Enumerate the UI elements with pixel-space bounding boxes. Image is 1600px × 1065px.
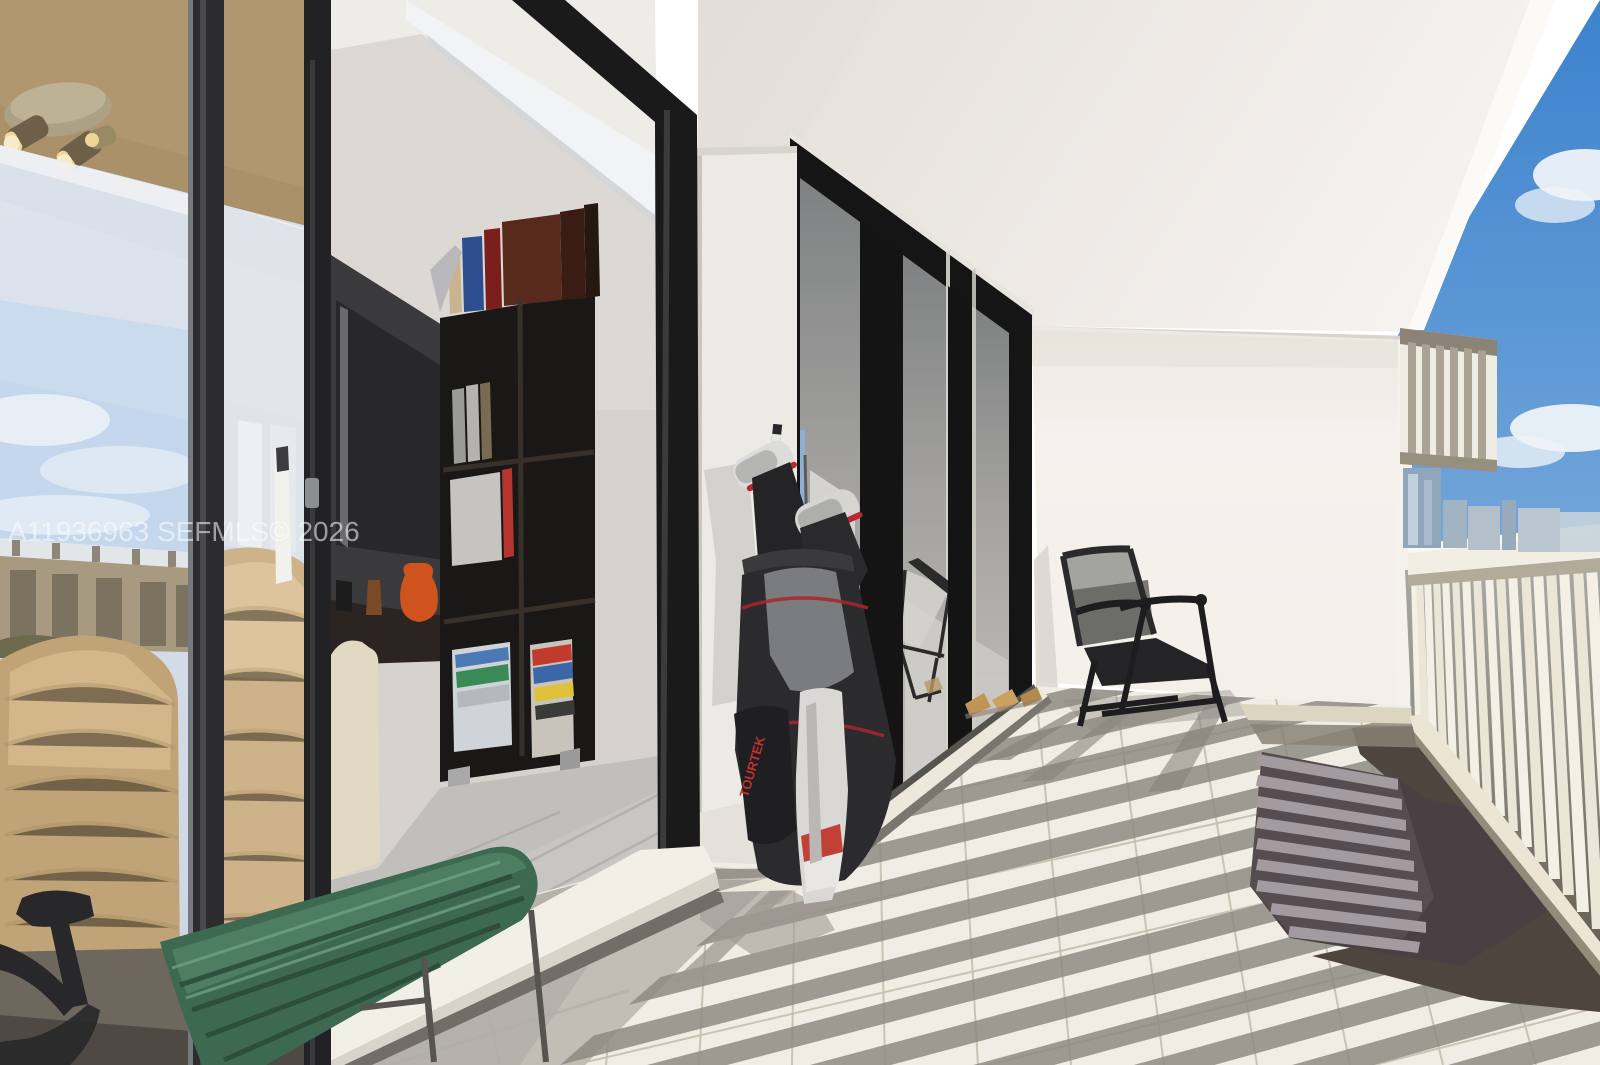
svg-text:A11936963 SEFMLS© 2026: A11936963 SEFMLS© 2026 bbox=[8, 516, 360, 547]
